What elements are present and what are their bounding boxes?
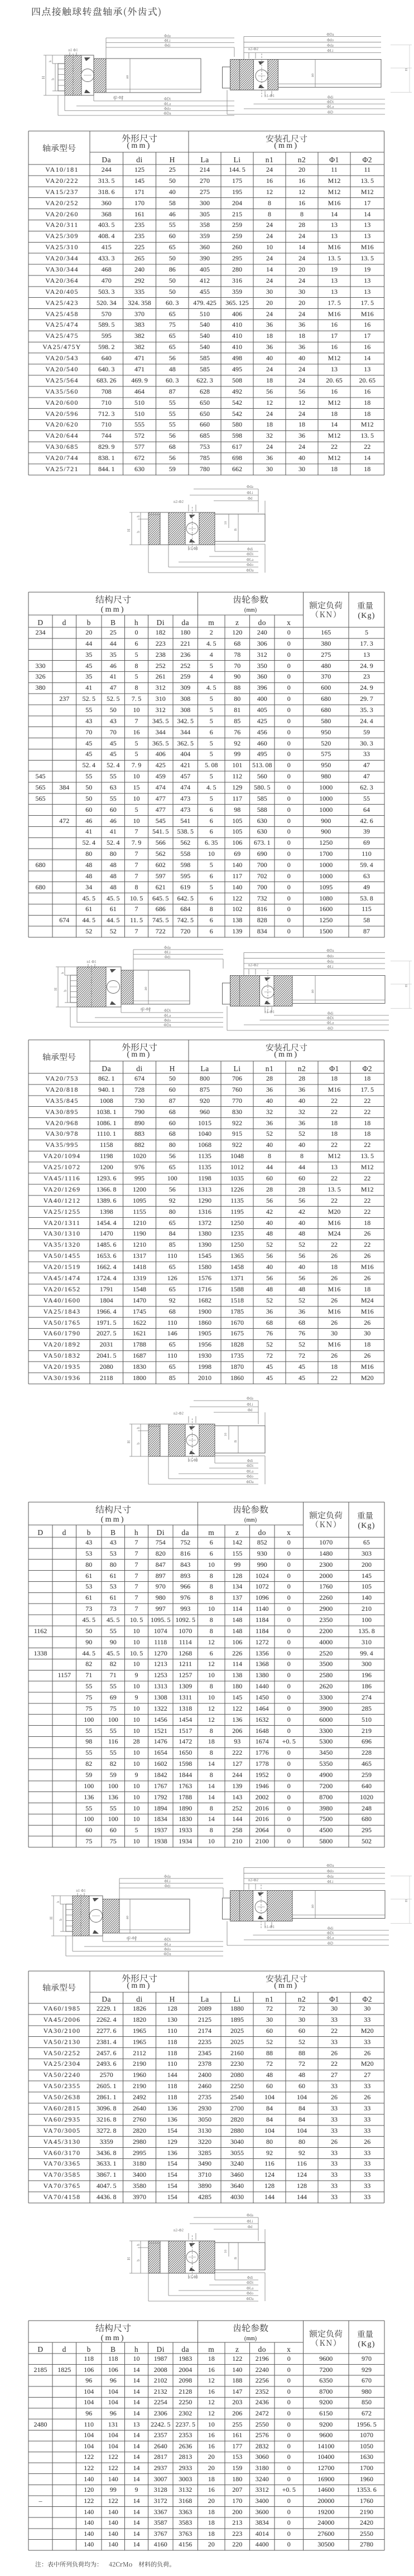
svg-text:ΦLa: ΦLa <box>164 1943 171 1947</box>
svg-text:Φda: Φda <box>327 960 334 964</box>
svg-text:Φda: Φda <box>327 1875 334 1879</box>
svg-text:ΦDi: ΦDi <box>164 1009 171 1013</box>
svg-text:Φda: Φda <box>327 43 334 48</box>
svg-text:n2-Φ2: n2-Φ2 <box>248 963 258 967</box>
svg-text:ΦDa: ΦDa <box>163 112 171 116</box>
svg-text:ΦDa: ΦDa <box>326 32 334 37</box>
svg-text:ΦDa: ΦDa <box>246 2297 254 2301</box>
svg-text:H: H <box>41 76 46 79</box>
svg-text:10: 10 <box>224 1433 228 1437</box>
svg-text:b: b <box>136 1442 141 1445</box>
svg-text:Φda: Φda <box>247 1396 254 1401</box>
svg-text:Φd: Φd <box>248 1408 253 1412</box>
svg-text:B: B <box>234 528 238 531</box>
svg-text:ΦLa: ΦLa <box>247 1469 254 1474</box>
svg-text:n2-Φ2: n2-Φ2 <box>174 500 184 504</box>
svg-text:ΦDi: ΦDi <box>327 1016 334 1020</box>
svg-text:H: H <box>127 1440 131 1443</box>
svg-text:Φda: Φda <box>164 1875 171 1879</box>
svg-text:B: B <box>234 1440 238 1442</box>
svg-text:10: 10 <box>224 521 228 525</box>
svg-text:ao: ao <box>310 989 315 993</box>
svg-text:ΦDa: ΦDa <box>326 1863 334 1868</box>
svg-text:H: H <box>405 68 408 71</box>
svg-text:b: b <box>63 990 68 992</box>
svg-text:b: b <box>59 1919 63 1921</box>
svg-text:ΦLi: ΦLi <box>327 1880 333 1884</box>
svg-text:ao: ao <box>310 1904 315 1908</box>
svg-text:Φdi: Φdi <box>328 95 334 100</box>
svg-text:Φdi: Φdi <box>165 955 171 960</box>
svg-text:ao: ao <box>125 1915 129 1919</box>
svg-text:ΦLa: ΦLa <box>327 1021 334 1025</box>
svg-text:h: h <box>136 1427 141 1429</box>
svg-text:ΦLi: ΦLi <box>327 49 333 53</box>
svg-text:ΦD: ΦD <box>328 1026 333 1031</box>
svg-text:Φdi: Φdi <box>328 1011 334 1016</box>
svg-text:n1-Φ1: n1-Φ1 <box>264 1925 275 1929</box>
svg-text:ΦDa: ΦDa <box>163 1023 171 1028</box>
svg-text:Φdi: Φdi <box>165 43 171 48</box>
svg-text:10: 10 <box>224 2250 228 2254</box>
svg-text:Φdo: Φdo <box>247 2291 254 2296</box>
svg-text:Φdo: Φdo <box>247 563 254 567</box>
svg-text:ΦLi: ΦLi <box>164 1879 170 1883</box>
svg-text:ΦDi: ΦDi <box>327 100 334 104</box>
svg-text:H: H <box>405 984 408 987</box>
svg-text:Φda: Φda <box>164 34 171 38</box>
svg-text:Φdi: Φdi <box>247 1459 253 1463</box>
svg-text:b: b <box>51 78 55 80</box>
svg-text:B: B <box>234 2257 238 2259</box>
svg-text:H: H <box>54 987 58 990</box>
svg-text:n1 Φ1: n1 Φ1 <box>76 1889 86 1893</box>
svg-text:h: h <box>136 515 141 517</box>
svg-text:H: H <box>127 2257 131 2260</box>
svg-text:H: H <box>127 529 131 531</box>
svg-text:ΦLa: ΦLa <box>327 105 334 109</box>
svg-text:h: h <box>56 1901 60 1903</box>
svg-text:ao: ao <box>143 986 148 990</box>
svg-text:b: b <box>136 531 141 533</box>
svg-text:ΦD: ΦD <box>328 110 333 115</box>
svg-text:n1-Φ1: n1-Φ1 <box>188 1458 198 1463</box>
svg-text:h: h <box>136 2244 141 2246</box>
svg-text:n2-Φ2: n2-Φ2 <box>174 1411 184 1416</box>
svg-text:ΦLa: ΦLa <box>327 1936 334 1940</box>
svg-text:Φdo: Φdo <box>327 1869 334 1873</box>
svg-text:n1-Φ1: n1-Φ1 <box>264 1010 275 1014</box>
svg-text:ΦDi: ΦDi <box>164 97 171 101</box>
svg-text:n1-Φ1: n1-Φ1 <box>264 94 275 98</box>
svg-text:ΦDa: ΦDa <box>326 948 334 953</box>
svg-text:h: h <box>61 972 65 974</box>
svg-text:n1 Φ1: n1 Φ1 <box>68 48 78 52</box>
svg-text:ΦDa: ΦDa <box>246 1480 254 1484</box>
svg-text:ao: ao <box>125 75 129 79</box>
svg-text:Φd: Φd <box>248 2225 253 2229</box>
svg-text:ΦLi: ΦLi <box>247 1402 253 1407</box>
svg-text:ΦDi: ΦDi <box>247 552 253 556</box>
svg-text:Φdi: Φdi <box>247 2275 253 2280</box>
svg-text:n2-Φ2: n2-Φ2 <box>174 2228 184 2233</box>
svg-text:Φdo: Φdo <box>164 106 171 111</box>
svg-text:H: H <box>405 1899 408 1902</box>
svg-text:ΦLi: ΦLi <box>164 950 170 955</box>
svg-text:Φdo: Φdo <box>247 1474 254 1479</box>
svg-text:h: h <box>49 60 52 62</box>
svg-text:n2-Φ2: n2-Φ2 <box>248 1878 258 1882</box>
svg-text:Φdi: Φdi <box>247 547 253 551</box>
svg-text:ΦLi: ΦLi <box>247 2219 253 2224</box>
svg-text:ΦDi: ΦDi <box>247 1464 253 1468</box>
svg-text:Φdo: Φdo <box>164 1018 171 1023</box>
svg-text:Φdo: Φdo <box>327 954 334 958</box>
svg-text:ΦDa: ΦDa <box>163 1952 171 1957</box>
svg-text:ΦLa: ΦLa <box>164 102 171 106</box>
svg-text:Φda: Φda <box>247 485 254 489</box>
svg-text:ΦDi: ΦDi <box>164 1938 171 1942</box>
svg-text:ΦLi: ΦLi <box>247 491 253 495</box>
svg-text:ΦLa: ΦLa <box>164 1014 171 1018</box>
svg-text:Φdi: Φdi <box>165 1884 171 1889</box>
svg-text:ΦLa: ΦLa <box>247 558 254 562</box>
svg-text:ΦDi: ΦDi <box>247 2280 253 2285</box>
svg-text:n1-Φ1: n1-Φ1 <box>188 546 198 551</box>
svg-text:H: H <box>49 1916 54 1919</box>
svg-text:Φdo: Φdo <box>327 38 334 42</box>
svg-text:ΦLi: ΦLi <box>164 38 170 43</box>
svg-text:ΦLa: ΦLa <box>247 2286 254 2291</box>
svg-text:Φda: Φda <box>247 2213 254 2217</box>
svg-text:ao: ao <box>310 73 315 77</box>
svg-text:ΦDi: ΦDi <box>327 1931 334 1935</box>
svg-text:n1 Φ1: n1 Φ1 <box>86 960 97 964</box>
svg-text:ΦLi: ΦLi <box>327 965 333 969</box>
svg-text:n1-Φ1: n1-Φ1 <box>188 2275 198 2279</box>
svg-text:Φdo: Φdo <box>164 1947 171 1952</box>
svg-text:b: b <box>136 2259 141 2262</box>
svg-text:Φd: Φd <box>248 496 253 501</box>
svg-text:ΦDa: ΦDa <box>246 568 254 573</box>
svg-text:Φdi: Φdi <box>328 1926 334 1931</box>
svg-text:n2-Φ2: n2-Φ2 <box>248 47 258 51</box>
svg-text:ΦD: ΦD <box>328 1941 333 1946</box>
svg-text:Φda: Φda <box>164 946 171 950</box>
